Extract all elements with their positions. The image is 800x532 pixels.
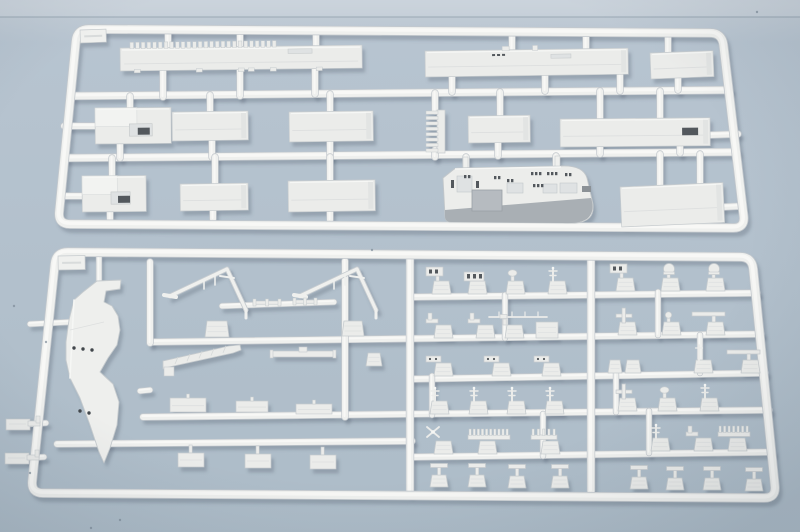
part-hull-panel: [180, 183, 248, 211]
part-stand-fitting: [430, 464, 448, 488]
part-molding-tab: [342, 321, 364, 336]
part-molding-tab: [205, 321, 229, 337]
part-stand-fitting: [745, 468, 763, 492]
part-stand-fitting: [703, 467, 721, 491]
sprue-id-tag: [58, 256, 85, 270]
seam-line: [0, 16, 800, 18]
part-molding-tab: [536, 322, 558, 338]
photo-model-kit-sprues: [0, 0, 800, 532]
part-hull-panel: [172, 111, 248, 141]
part-stand-fitting: [551, 465, 569, 489]
part-stand-fitting: [508, 465, 526, 489]
part-hull-panel: [620, 183, 725, 227]
part-hull-block: [95, 107, 171, 144]
part-hull-block: [82, 175, 146, 212]
part-stand-fitting: [666, 467, 684, 491]
wall-strip: [0, 0, 800, 17]
part-stand-fitting: [630, 466, 648, 490]
sprues-photo-canvas: [0, 0, 800, 532]
part-hull-panel: [289, 111, 373, 142]
sprue-id-tag: [80, 29, 106, 43]
part-hull-panel: [288, 180, 375, 212]
part-hull-panel: [650, 51, 714, 79]
part-stand-fitting: [468, 464, 486, 488]
part-hull-panel: [468, 115, 530, 143]
part-molding-tab: [366, 353, 382, 366]
part-hull-panel: [560, 118, 710, 147]
